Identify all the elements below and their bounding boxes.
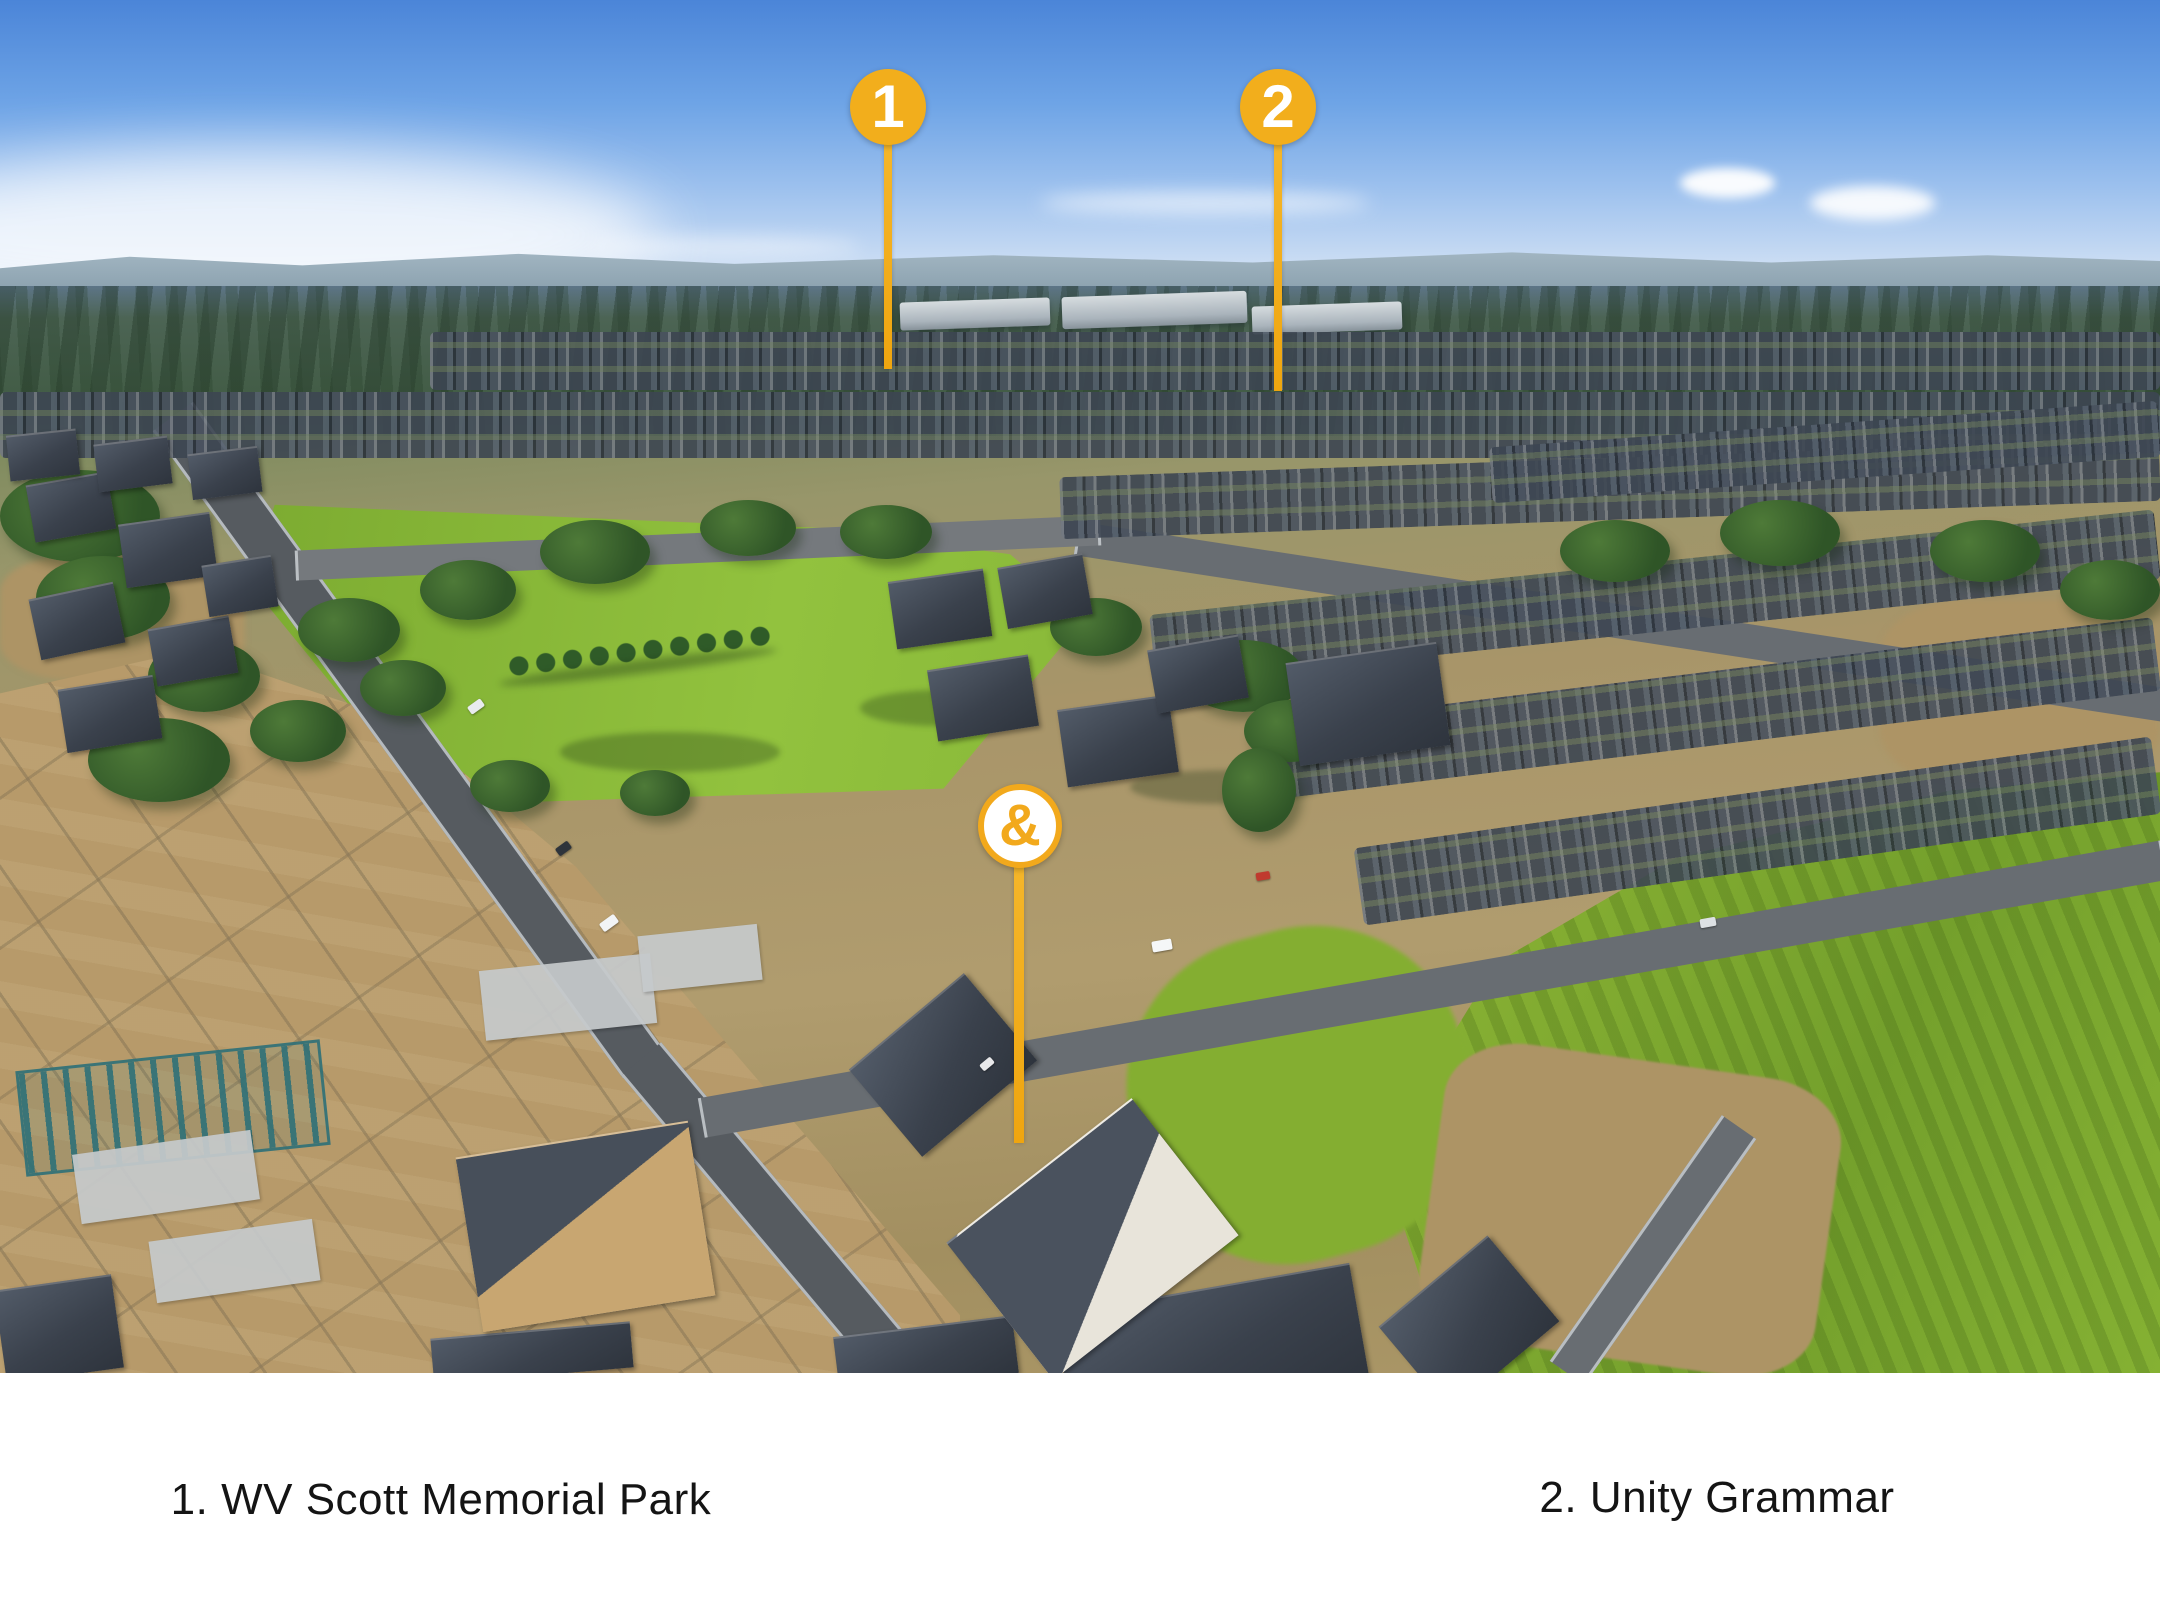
rooftop-row [430, 332, 2160, 390]
tree-cluster [700, 500, 796, 556]
house-roof [888, 569, 993, 650]
marketing-image: 1 2 & 1. WV Scott Memorial Park Raine&Ho… [0, 0, 2160, 1618]
house-roof [0, 1274, 124, 1373]
marker-1-icon: 1 [850, 69, 926, 145]
house-roof [1286, 642, 1451, 766]
house-under-construction [456, 1121, 716, 1333]
house-roof [187, 446, 262, 500]
marker-2-line [1274, 143, 1282, 391]
caption-right: 2. Unity Grammar [1539, 1476, 1894, 1520]
tree-cluster [840, 505, 932, 559]
tree-cluster [540, 520, 650, 584]
tree-cluster [360, 660, 446, 716]
cloud [590, 238, 860, 256]
house-roof [93, 436, 172, 493]
distant-building [1061, 291, 1247, 329]
cloud [1040, 192, 1370, 214]
tree-cluster [1222, 748, 1296, 832]
tree-cluster [1930, 520, 2040, 582]
tree-cluster [470, 760, 550, 812]
tree-shadow [560, 732, 780, 772]
house-roof [6, 428, 80, 481]
marker-1-line [884, 143, 892, 369]
marker-2-label: 2 [1261, 77, 1294, 137]
caption-bar: 1. WV Scott Memorial Park Raine&Horne® W… [0, 1373, 2160, 1618]
caption-left: 1. WV Scott Memorial Park [171, 1478, 712, 1522]
marker-2-icon: 2 [1240, 69, 1316, 145]
tree-cluster [420, 560, 516, 620]
tree-cluster [250, 700, 346, 762]
house-roof [201, 555, 278, 617]
ampersand-marker-line [1014, 862, 1024, 1143]
marker-1-label: 1 [871, 77, 904, 137]
tree-cluster [1720, 500, 1840, 566]
tree-cluster [1560, 520, 1670, 582]
distant-building [900, 297, 1051, 330]
cloud [1680, 168, 1775, 198]
tree-cluster [298, 598, 400, 662]
aerial-photo: 1 2 & [0, 0, 2160, 1373]
tree-cluster [2060, 560, 2160, 620]
cloud [1810, 186, 1935, 220]
tree-cluster [620, 770, 690, 816]
ampersand-label: & [999, 797, 1041, 855]
ampersand-marker-icon: & [978, 784, 1062, 868]
